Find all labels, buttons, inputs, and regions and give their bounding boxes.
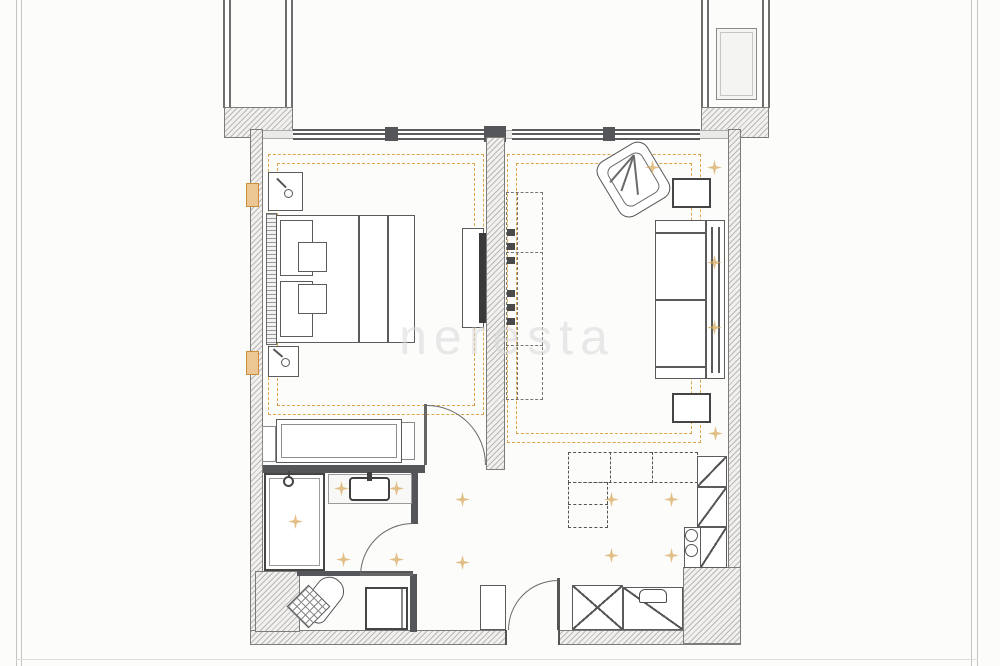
bathroom-door-swing xyxy=(360,523,413,576)
duvet-fold-line xyxy=(358,216,360,342)
shelving-unit-divider xyxy=(517,192,518,400)
kitchen-counter-divider xyxy=(568,504,608,505)
wardrobe-side-panel xyxy=(401,422,415,460)
tall-cabinet xyxy=(700,527,727,568)
sink-bowl xyxy=(685,544,698,557)
entry-door-opening xyxy=(506,630,559,645)
watermark: neresta xyxy=(362,308,652,366)
lamp-icon xyxy=(284,189,293,198)
entry-door-swing xyxy=(508,580,558,630)
tall-cabinet xyxy=(697,487,727,527)
shelf-item xyxy=(507,290,515,297)
pillow xyxy=(298,242,327,272)
balcony-right-rail xyxy=(762,0,770,108)
shower-head-icon xyxy=(283,476,294,487)
balcony-outdoor-unit-inner xyxy=(720,32,753,96)
partition-wall xyxy=(486,137,505,470)
bedroom-window xyxy=(293,129,385,140)
sofa-armrest-line xyxy=(656,232,705,234)
sofa-backrest-line xyxy=(718,227,720,373)
bedroom-window xyxy=(398,129,484,140)
side-table xyxy=(672,393,711,423)
shelving-unit-divider xyxy=(506,252,543,253)
pillow xyxy=(298,284,327,314)
shelf-item xyxy=(507,257,515,264)
kitchen-counter-divider xyxy=(652,452,653,483)
shelf-item xyxy=(507,229,515,236)
washing-machine-line xyxy=(401,589,403,628)
sink-bowl xyxy=(685,529,698,542)
entry-door-jamb xyxy=(505,630,507,645)
bottom-exterior-wall xyxy=(250,630,741,645)
sofa-armrest-line xyxy=(656,366,705,368)
bathroom-door-leaf xyxy=(360,573,413,576)
balcony-left-rail xyxy=(285,0,293,108)
bathroom-wall xyxy=(411,472,418,524)
wall-block-bottom-right xyxy=(683,567,741,644)
tall-cabinet xyxy=(697,456,727,487)
radiator xyxy=(246,351,259,375)
spotlight-icon xyxy=(707,160,722,175)
frame-line xyxy=(971,0,972,666)
floor-plan: neresta xyxy=(0,0,1000,666)
sofa-seat-divider xyxy=(656,299,705,301)
frame-line xyxy=(16,0,17,666)
faucet-icon xyxy=(367,472,372,481)
wardrobe-inner xyxy=(281,424,397,458)
spotlight-icon xyxy=(664,492,679,507)
bathroom-wall xyxy=(410,574,417,632)
wardrobe xyxy=(276,419,402,463)
spotlight-icon xyxy=(708,426,723,441)
kitchen-counter xyxy=(568,452,698,483)
wardrobe-side-panel xyxy=(262,426,276,462)
window-mullion xyxy=(603,127,615,141)
balcony-right-rail xyxy=(701,0,709,108)
bedroom-door-opening xyxy=(425,465,486,473)
shower-head-icon xyxy=(288,471,290,477)
frame-line-bottom xyxy=(16,659,978,660)
spotlight-icon xyxy=(455,492,470,507)
sofa-backrest-line xyxy=(711,227,713,373)
shoe-cabinet xyxy=(572,585,623,630)
spotlight-icon xyxy=(336,552,351,567)
entry-door-jamb xyxy=(558,630,560,645)
window-mullion xyxy=(385,127,398,141)
sofa-backrest-line xyxy=(705,221,707,378)
frame-line xyxy=(977,0,978,666)
balcony-outdoor-unit xyxy=(716,28,757,100)
frame-line xyxy=(21,0,22,666)
side-table xyxy=(672,178,711,208)
cabinet-handle xyxy=(639,589,667,603)
kitchen-counter-leg xyxy=(568,482,608,528)
living-window xyxy=(512,129,603,140)
balcony-left-rail xyxy=(223,0,231,108)
spotlight-icon xyxy=(455,555,470,570)
spotlight-icon xyxy=(664,548,679,563)
lamp-icon xyxy=(281,358,290,367)
spotlight-icon xyxy=(604,548,619,563)
entry-cabinet xyxy=(480,585,506,630)
kitchen-counter-divider xyxy=(610,452,611,483)
shelf-item xyxy=(507,243,515,250)
radiator xyxy=(246,183,259,207)
